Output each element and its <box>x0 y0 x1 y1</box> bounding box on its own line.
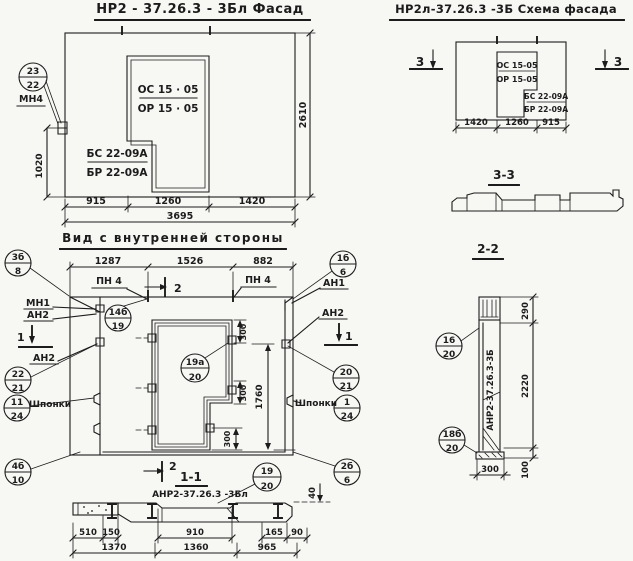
inner-label-an2-left-mid: АН2 <box>33 353 55 364</box>
scheme-title: НР2л-37.26.3 -3Б Схема фасада <box>395 2 617 16</box>
section-1-1-profile <box>118 503 292 522</box>
inner-callout-20-21: 20 21 <box>288 346 359 392</box>
scheme-block-mark-bottom: БР 22-09А <box>524 105 568 114</box>
section-3-3-profile <box>452 190 623 211</box>
facade-dim-total: 3695 <box>167 211 193 222</box>
inner-label-mn1: МН1 <box>26 298 50 309</box>
callout-bottom: 19 <box>112 322 125 332</box>
inner-callout-4b-10: 4б 10 <box>5 452 80 486</box>
inner-panel-edges <box>70 297 285 455</box>
dim-arrow <box>233 443 239 450</box>
inner-callout-2b-6: 2б 6 <box>293 452 360 486</box>
section-3-marker-label: 3 <box>614 55 622 69</box>
section-1-1-dim-150: 150 <box>102 528 120 538</box>
section-2-2-callout-16-20: 16 20 <box>436 328 479 360</box>
section-2-2-bottom-pad-hatch <box>479 453 502 458</box>
inner-dim-300-c: 300 <box>212 428 242 450</box>
inner-callout-1-24: 1 24 <box>334 395 360 422</box>
callout-bottom: 24 <box>11 412 24 422</box>
marker-label: 2 <box>174 282 182 295</box>
inner-dim-882: 882 <box>253 256 273 267</box>
section-1-1: 2 1-1 АНР2-37.26.3 -3Бл 19 20 40 510 <box>70 460 330 558</box>
scheme-section-marker-left: 3 <box>410 50 442 69</box>
inner-label-pn4-left: ПН 4 <box>96 276 122 287</box>
callout-leader <box>464 445 477 453</box>
section-1-1-end-bar-hatch <box>83 505 113 514</box>
section-2-2-dim-ext <box>500 297 538 458</box>
facade-callout-top: 23 <box>27 67 40 77</box>
facade-dim-915: 915 <box>86 196 106 207</box>
callout-top: 2б <box>341 461 354 472</box>
facade-block-mark-bottom: БР 22-09А <box>86 167 148 179</box>
inner-label-an1: АН1 <box>323 278 345 289</box>
dim-text: 300 <box>223 430 232 447</box>
scheme-window-mark-bottom: ОР 15-05 <box>496 75 537 84</box>
facade-dim-left: 1020 <box>35 153 45 178</box>
section-2-2-top-loop <box>479 297 500 320</box>
inner-panel-outline <box>70 297 293 455</box>
scheme-dim-915: 915 <box>542 118 560 128</box>
inner-pn4-marks <box>148 291 233 301</box>
callout-leader <box>293 452 335 466</box>
inner-label-an2-right: АН2 <box>322 308 344 319</box>
marker-arrowhead <box>29 336 35 344</box>
facade-window-mark-top: ОС 15 · 05 <box>138 84 199 96</box>
scheme-dim-1260: 1260 <box>505 118 529 128</box>
inner-label-shponki-right: Шпонки <box>295 399 337 409</box>
facade-dim-1260: 1260 <box>155 196 182 207</box>
section-2-2: 2-2 АНР2-37.26.3-3Б 290 2220 100 300 16 … <box>436 242 538 480</box>
section-1-1-title: 1-1 <box>180 470 202 484</box>
marker-arrowhead <box>336 334 342 342</box>
section-1-1-dim-40: 40 <box>308 487 318 499</box>
section-1-1-dim-165: 165 <box>265 528 283 538</box>
inner-section-marker-1-right: 1 <box>325 324 357 345</box>
section-1-1-dim-965: 965 <box>258 543 277 553</box>
section-1-1-anchor-marks <box>108 504 282 518</box>
scheme-view: НР2л-37.26.3 -3Б Схема фасада ОС 15-05 О… <box>390 2 628 133</box>
dim-arrow <box>265 344 271 351</box>
section-1-1-marker-2: 2 <box>144 460 177 481</box>
callout-top: 3б <box>12 252 25 263</box>
dim-text: 300 <box>239 323 248 340</box>
callout-top: 18б <box>443 429 462 440</box>
section-2-2-dim-300: 300 <box>481 465 499 475</box>
callout-bottom: 10 <box>12 476 25 486</box>
callout-top: 14б <box>109 307 128 318</box>
section-1-1-profile-joints <box>162 508 239 522</box>
inner-dim-1526: 1526 <box>177 256 204 267</box>
facade-title: НР2 - 37.26.3 - 3Бл Фасад <box>96 2 304 17</box>
callout-bottom: 20 <box>261 482 274 492</box>
blueprint-sheet: НР2 - 37.26.3 - 3Бл Фасад ОС 15 · 05 ОР … <box>0 0 633 561</box>
section-3-3: 3-3 <box>452 168 623 211</box>
callout-bottom: 21 <box>340 382 353 392</box>
section-2-2-dim-100: 100 <box>521 461 531 479</box>
facade-callout-bottom: 22 <box>27 81 40 91</box>
section-3-3-profile-joints <box>467 193 570 211</box>
section-1-1-dim-90: 90 <box>291 528 303 538</box>
inner-label-an2-left-top: АН2 <box>27 310 49 321</box>
section-3-marker-arrowhead <box>602 61 608 69</box>
section-1-1-dim-910: 910 <box>186 528 204 538</box>
callout-top: 4б <box>12 461 25 472</box>
callout-top: 22 <box>12 370 25 380</box>
callout-leader <box>30 268 69 296</box>
section-3-marker-arrowhead <box>430 61 436 69</box>
marker-label: 1 <box>345 330 353 343</box>
marker-label: 1 <box>17 331 25 344</box>
inner-callout-3b-8: 3б 8 <box>5 250 69 296</box>
dim-text: 1760 <box>255 384 265 409</box>
section-2-2-dim-290: 290 <box>521 302 531 320</box>
inner-callout-1b-6: 1б 6 <box>293 251 356 299</box>
blueprint-canvas: НР2 - 37.26.3 - 3Бл Фасад ОС 15 · 05 ОР … <box>0 0 633 561</box>
section-2-2-top-loop-detail <box>481 300 498 317</box>
callout-bottom: 20 <box>189 373 202 383</box>
callout-bottom: 8 <box>15 267 21 277</box>
callout-top: 19 <box>261 467 274 477</box>
section-1-1-dim-510: 510 <box>79 528 97 538</box>
section-3-3-title: 3-3 <box>493 168 515 182</box>
callout-leader <box>205 343 228 358</box>
inner-label-pn4-right: ПН 4 <box>245 275 271 286</box>
inner-anchor-details <box>96 297 293 348</box>
facade-dim-height: 2610 <box>298 101 309 128</box>
section-3-marker-label: 3 <box>416 55 424 69</box>
callout-top: 16 <box>443 336 456 346</box>
callout-bottom: 20 <box>446 444 459 454</box>
scheme-window-mark-top: ОС 15-05 <box>496 61 537 70</box>
inner-label-pn4-right-leader <box>234 287 276 297</box>
dim-arrow <box>265 443 271 450</box>
section-1-1-dim-1360: 1360 <box>183 543 208 553</box>
inner-window-opening <box>152 320 232 450</box>
facade-view: НР2 - 37.26.3 - 3Бл Фасад ОС 15 · 05 ОР … <box>17 2 315 227</box>
marker-label: 2 <box>169 460 177 473</box>
inner-dim-1287: 1287 <box>95 256 121 267</box>
facade-anchor-mn4 <box>58 122 67 134</box>
scheme-dim-1420: 1420 <box>464 118 488 128</box>
callout-leader <box>461 328 479 341</box>
facade-block-mark-top: БС 22-09А <box>86 148 148 160</box>
callout-bottom: 6 <box>340 268 346 278</box>
callout-leader <box>31 452 80 469</box>
inner-callout-14b-19: 14б 19 <box>105 299 147 332</box>
dim-text: 300 <box>239 384 248 401</box>
facade-callout-leader <box>44 81 61 124</box>
inner-window-keys <box>148 334 236 434</box>
section-1-1-dim-1370: 1370 <box>101 543 126 553</box>
callout-bottom: 20 <box>443 350 456 360</box>
callout-bottom: 21 <box>12 384 25 394</box>
callout-leader <box>288 346 334 372</box>
scheme-section-marker-right: 3 <box>596 50 628 69</box>
facade-window-mark-bottom: ОР 15 · 05 <box>138 103 199 115</box>
inner-section-marker-2-top: 2 <box>145 278 182 296</box>
callout-top: 19а <box>186 358 205 368</box>
inner-section-marker-1-left: 1 <box>17 326 52 347</box>
inner-title: Вид с внутренней стороны <box>62 231 284 245</box>
facade-dim-1420: 1420 <box>239 196 266 207</box>
callout-top: 20 <box>340 368 353 378</box>
callout-bottom: 24 <box>341 412 354 422</box>
facade-callout-label: МН4 <box>19 94 43 105</box>
dim-arrow <box>233 428 239 435</box>
inner-window-key-centerlines <box>136 338 148 430</box>
inner-view: Вид с внутренней стороны 1287 1526 882 3… <box>4 231 360 486</box>
callout-bottom: 6 <box>344 476 350 486</box>
callout-top: 11 <box>11 398 24 408</box>
inner-label-an1-leader <box>292 288 348 303</box>
inner-callout-19a-20: 19а 20 <box>181 343 228 383</box>
section-2-2-bottom-pad <box>476 452 504 459</box>
callout-top: 1 <box>344 398 350 408</box>
callout-top: 1б <box>337 253 350 264</box>
inner-callout-22-21: 22 21 <box>5 344 97 394</box>
section-2-2-dim-2220: 2220 <box>521 374 531 398</box>
facade-dim-left-ext <box>47 128 65 197</box>
section-2-2-callout-18b-20: 18б 20 <box>439 427 477 454</box>
section-2-2-title: 2-2 <box>477 242 499 256</box>
section-2-2-panel-label: АНР2-37.26.3-3Б <box>486 349 496 430</box>
callout-leader <box>124 299 147 306</box>
scheme-block-mark-top: БС 22-09А <box>524 92 568 101</box>
